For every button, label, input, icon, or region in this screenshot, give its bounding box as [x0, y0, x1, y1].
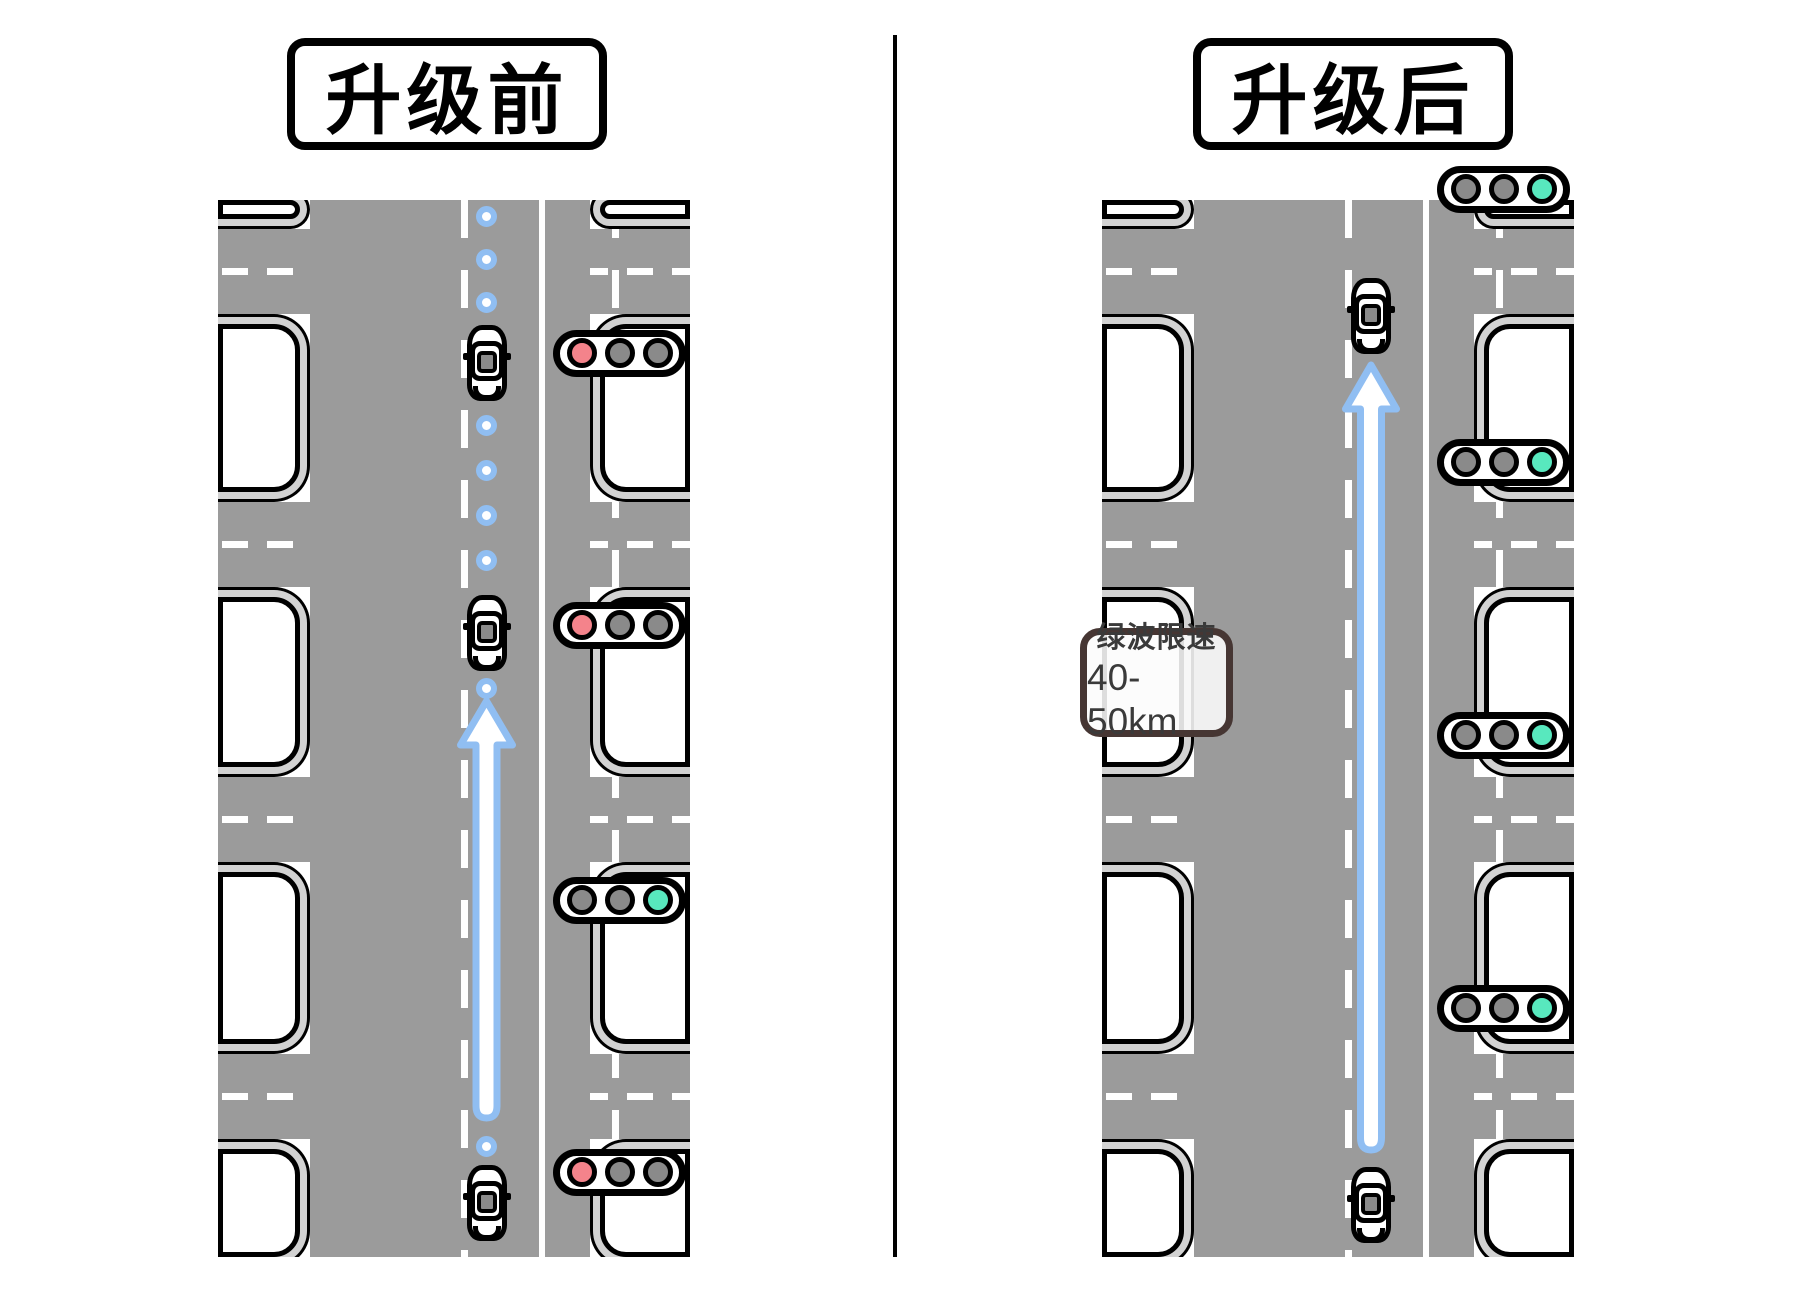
- path-dot: [476, 460, 497, 481]
- speed-sign-line1: 绿波限速: [1096, 621, 1216, 656]
- traffic-light-bulb: [567, 1157, 597, 1187]
- car-roof: [477, 1191, 497, 1213]
- car-mirror: [463, 623, 470, 630]
- car-roof: [1361, 1193, 1381, 1215]
- traffic-light-bulb: [1451, 993, 1481, 1023]
- car-roof: [1361, 304, 1381, 326]
- path-dot: [476, 206, 497, 227]
- car: [1351, 278, 1391, 354]
- car-mirror: [463, 1193, 470, 1200]
- traffic-light: [553, 330, 686, 377]
- car-mirror: [1388, 1195, 1395, 1202]
- speed-sign-line2: 40-50km: [1087, 656, 1226, 745]
- car-mirror: [1347, 306, 1354, 313]
- traffic-light: [553, 1149, 686, 1196]
- traffic-light-bulb: [605, 338, 635, 368]
- traffic-light: [1437, 712, 1570, 759]
- title-after: 升级后: [1193, 38, 1513, 150]
- traffic-light: [1437, 166, 1570, 213]
- car-mirror: [504, 353, 511, 360]
- car: [467, 595, 507, 671]
- car: [1351, 1167, 1391, 1243]
- traffic-light-bulb: [1527, 447, 1557, 477]
- traffic-light: [553, 602, 686, 649]
- car-roof: [477, 621, 497, 643]
- traffic-light-bulb: [643, 1157, 673, 1187]
- traffic-light-bulb: [1527, 174, 1557, 204]
- traffic-light-bulb: [605, 885, 635, 915]
- path-dot: [476, 505, 497, 526]
- traffic-light: [553, 877, 686, 924]
- traffic-light-bulb: [567, 885, 597, 915]
- traffic-light-bulb: [567, 338, 597, 368]
- path-dot: [476, 550, 497, 571]
- traffic-light-bulb: [1451, 447, 1481, 477]
- traffic-light-bulb: [1489, 993, 1519, 1023]
- car-mirror: [1347, 1195, 1354, 1202]
- traffic-light-bulb: [1451, 720, 1481, 750]
- route-arrow-before: [461, 701, 513, 1118]
- car-mirror: [463, 353, 470, 360]
- traffic-light-bulb: [1527, 720, 1557, 750]
- traffic-light: [1437, 985, 1570, 1032]
- traffic-light-bulb: [1489, 447, 1519, 477]
- traffic-light-bulb: [605, 1157, 635, 1187]
- traffic-light-bulb: [1451, 174, 1481, 204]
- traffic-light-bulb: [1489, 174, 1519, 204]
- infographic-green-wave: 绿波限速 40-50km 升级前 升级后: [0, 0, 1800, 1300]
- traffic-light: [1437, 439, 1570, 486]
- path-dot: [476, 415, 497, 436]
- car-mirror: [504, 623, 511, 630]
- path-dot: [476, 249, 497, 270]
- traffic-light-bulb: [643, 610, 673, 640]
- path-dot: [476, 292, 497, 313]
- car-mirror: [1388, 306, 1395, 313]
- car: [467, 1165, 507, 1241]
- traffic-light-bulb: [643, 885, 673, 915]
- traffic-light-bulb: [1527, 993, 1557, 1023]
- path-dot: [476, 678, 497, 699]
- traffic-light-bulb: [567, 610, 597, 640]
- car: [467, 325, 507, 401]
- path-dot: [476, 1136, 497, 1157]
- traffic-light-bulb: [1489, 720, 1519, 750]
- title-before: 升级前: [287, 38, 607, 150]
- car-mirror: [504, 1193, 511, 1200]
- route-arrow-after: [1346, 365, 1397, 1150]
- traffic-light-bulb: [643, 338, 673, 368]
- traffic-light-bulb: [605, 610, 635, 640]
- car-roof: [477, 351, 497, 373]
- green-wave-speed-sign: 绿波限速 40-50km: [1080, 628, 1233, 737]
